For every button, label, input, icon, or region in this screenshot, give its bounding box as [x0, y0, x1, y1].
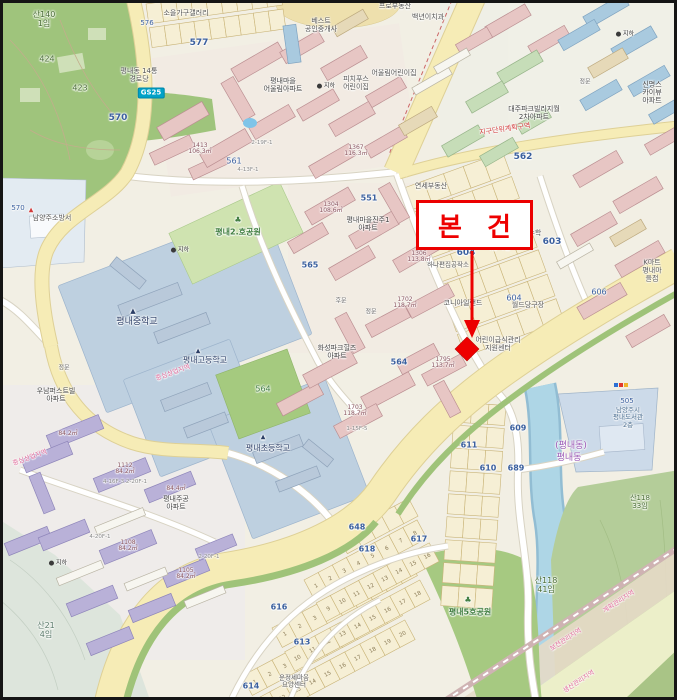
poi-pro-realty: 프로부동산: [379, 3, 411, 11]
apt-oullim: 평내마을 어울림아파트: [264, 78, 303, 94]
map-frame: 1234567891011121314151617181920123456789…: [0, 0, 677, 700]
parcel-616: 616: [271, 604, 288, 613]
building-label: 84.4㎡: [166, 486, 185, 492]
district-pyeongnae-dong: 평내동: [557, 453, 582, 463]
parcel-564-park: 564: [255, 386, 270, 395]
poi-best-realty: 베스트 공인중개사: [305, 18, 337, 34]
parcel-san118-33: 산118 33임: [630, 495, 650, 511]
poi-gs25-store: GS25: [138, 87, 165, 98]
parcel-576: 576: [140, 20, 153, 28]
building-label: 1703 118.7㎡: [343, 405, 366, 417]
building-label: 1105 84.2㎡: [176, 568, 195, 580]
zone-plan-management: 계획관리지역: [602, 589, 636, 615]
parcel-565: 565: [302, 262, 319, 271]
floor-label: 4-16F-3 2-20F-1: [103, 479, 147, 485]
school-icon: ▲: [130, 308, 135, 316]
floor-label: 4-20F-1: [89, 534, 110, 540]
parcel-423: 423: [72, 85, 87, 94]
parcel-570b: 570: [11, 205, 24, 213]
apt-jinju-1: 평내마을진주1 아파트: [346, 217, 389, 233]
floor-label: 2-20F-1: [198, 554, 219, 560]
apt-woonam-firstville: 우남퍼스트빌 아파트: [37, 388, 76, 404]
parcel-570: 570: [109, 113, 128, 123]
zone-preservation-management: 보전관리지역: [549, 627, 583, 653]
parcel-562: 562: [514, 152, 533, 162]
poi-oullim-daycare: 어울림어린이집: [371, 70, 416, 78]
park-pyeongnae-5: 평내5호공원: [449, 609, 491, 618]
gate-rear: 후문: [335, 299, 346, 306]
zone-central-commercial: 중심상업지역: [12, 448, 48, 467]
parcel-610: 610: [480, 465, 497, 474]
zone-production-management: 생산관리지역: [562, 669, 596, 695]
floor-label: 1-15F-5: [346, 426, 367, 432]
parcel-577: 577: [190, 38, 209, 48]
school-pyeongnae-high: 평내고등학교: [183, 357, 227, 366]
gate-main-2: 정문: [58, 366, 69, 373]
building-label: 1112 84.2㎡: [115, 463, 134, 475]
poi-daycare: 피치푸스 어린이집: [343, 76, 369, 92]
school-pyeongnae-middle: 평내중학교: [116, 317, 157, 327]
parcel-san21-4: 산21 4임: [37, 622, 55, 640]
building-label: 1413 106.3㎡: [188, 143, 211, 155]
floor-label: 2-19F-1: [251, 140, 272, 146]
underground-parking-marker: 지하: [317, 84, 335, 91]
building-label: 1304 108.6㎡: [319, 202, 342, 214]
parcel-648: 648: [349, 524, 366, 533]
parcel-609: 609: [510, 425, 527, 434]
apt-shinmyung-skyview: 신명스카이뷰 아파트: [640, 81, 665, 104]
poi-senior-center: 평내동 14통 경로당: [121, 68, 158, 84]
school-icon: ▲: [196, 349, 201, 356]
parcel-611: 611: [461, 442, 478, 451]
fire-station-icon: ▲: [29, 208, 34, 215]
subject-callout-label: 본 건: [438, 207, 519, 244]
gate-main-3: 정문: [365, 310, 376, 317]
district-pyeongnae-dong: (평내동): [555, 441, 587, 451]
parcel-san118-41: 산118 41임: [535, 577, 558, 595]
poi-dental-clinic: 백년이치과: [412, 14, 444, 22]
tree-icon: ♣: [464, 597, 471, 606]
parcel-551: 551: [361, 195, 378, 204]
parcel-564-road: 564: [391, 359, 408, 368]
zone-district-unit-plan: 지구단위계획구역: [479, 123, 531, 138]
poi-kmart: K마트 평내마을점: [640, 259, 665, 282]
apt-jugong: 평내주공 아파트: [163, 496, 189, 512]
parcel-san140-1: 산140 1임: [33, 11, 56, 29]
zone-central-commercial: 중심상업지역: [155, 363, 191, 382]
poi-world-billiards: 월드당구장: [512, 302, 544, 310]
parcel-689: 689: [508, 465, 525, 474]
building-label: 1306 113.8㎡: [407, 251, 430, 263]
apt-hwaseong-parkhills: 화성파크힐즈 아파트: [318, 345, 357, 361]
subject-callout-box: 본 건: [416, 200, 533, 250]
parcel-617: 617: [411, 536, 428, 545]
underground-parking-marker: 지하: [49, 561, 67, 568]
gate-main-1: 정문: [579, 80, 590, 87]
school-pyeongnae-elementary: 평내초등학교: [246, 445, 290, 454]
underground-parking-marker: 지하: [171, 248, 189, 255]
building-label: 84.2㎡: [58, 431, 77, 437]
parcel-618: 618: [359, 546, 376, 555]
parcel-606: 606: [591, 289, 606, 298]
apt-daeju-parkvillage: 대주파크빌리지월 2차아파트: [508, 106, 560, 122]
poi-fire-station: 남양주소방서: [33, 215, 72, 223]
building-label: 1795 113.7㎡: [431, 357, 454, 369]
parcel-613: 613: [294, 639, 311, 648]
building-label: 1108 84.2㎡: [118, 540, 137, 552]
poi-children-food-center: 어린이급식관리 지원센터: [475, 337, 520, 353]
parcel-614: 614: [243, 683, 260, 692]
parcel-424: 424: [39, 56, 54, 65]
school-icon: ▲: [261, 435, 266, 442]
floor-label: 4-13F-1: [237, 167, 258, 173]
poi-pyeongnae-library: 남양주시 평내도서관 2층: [613, 407, 643, 429]
poi-hana-workshop: 하나편집공작소: [427, 261, 469, 268]
building-label: 1702 118.7㎡: [393, 297, 416, 309]
parcel-604b: 604: [506, 295, 521, 304]
building-label: 1367 116.3㎡: [344, 145, 367, 157]
parcel-505: 505: [620, 398, 633, 406]
park-pyeongnae-2: 평내2.호공원: [215, 229, 260, 238]
map-labels-layer: 산140 1임424423570576577소을가구갤러리평내동 14통 경로당…: [0, 0, 677, 700]
parcel-561: 561: [226, 158, 241, 167]
poi-care-center: 운정세마음 요양센터: [279, 675, 309, 690]
poi-soeul-furniture-gallery: 소을가구갤러리: [163, 10, 208, 18]
parcel-603: 603: [543, 237, 562, 247]
poi-coney-island: 코니아일랜드: [444, 300, 483, 308]
underground-parking-marker: 지하: [616, 32, 634, 39]
poi-yonsei-realty: 연세부동산: [415, 183, 447, 191]
tree-icon: ♣: [234, 217, 241, 226]
